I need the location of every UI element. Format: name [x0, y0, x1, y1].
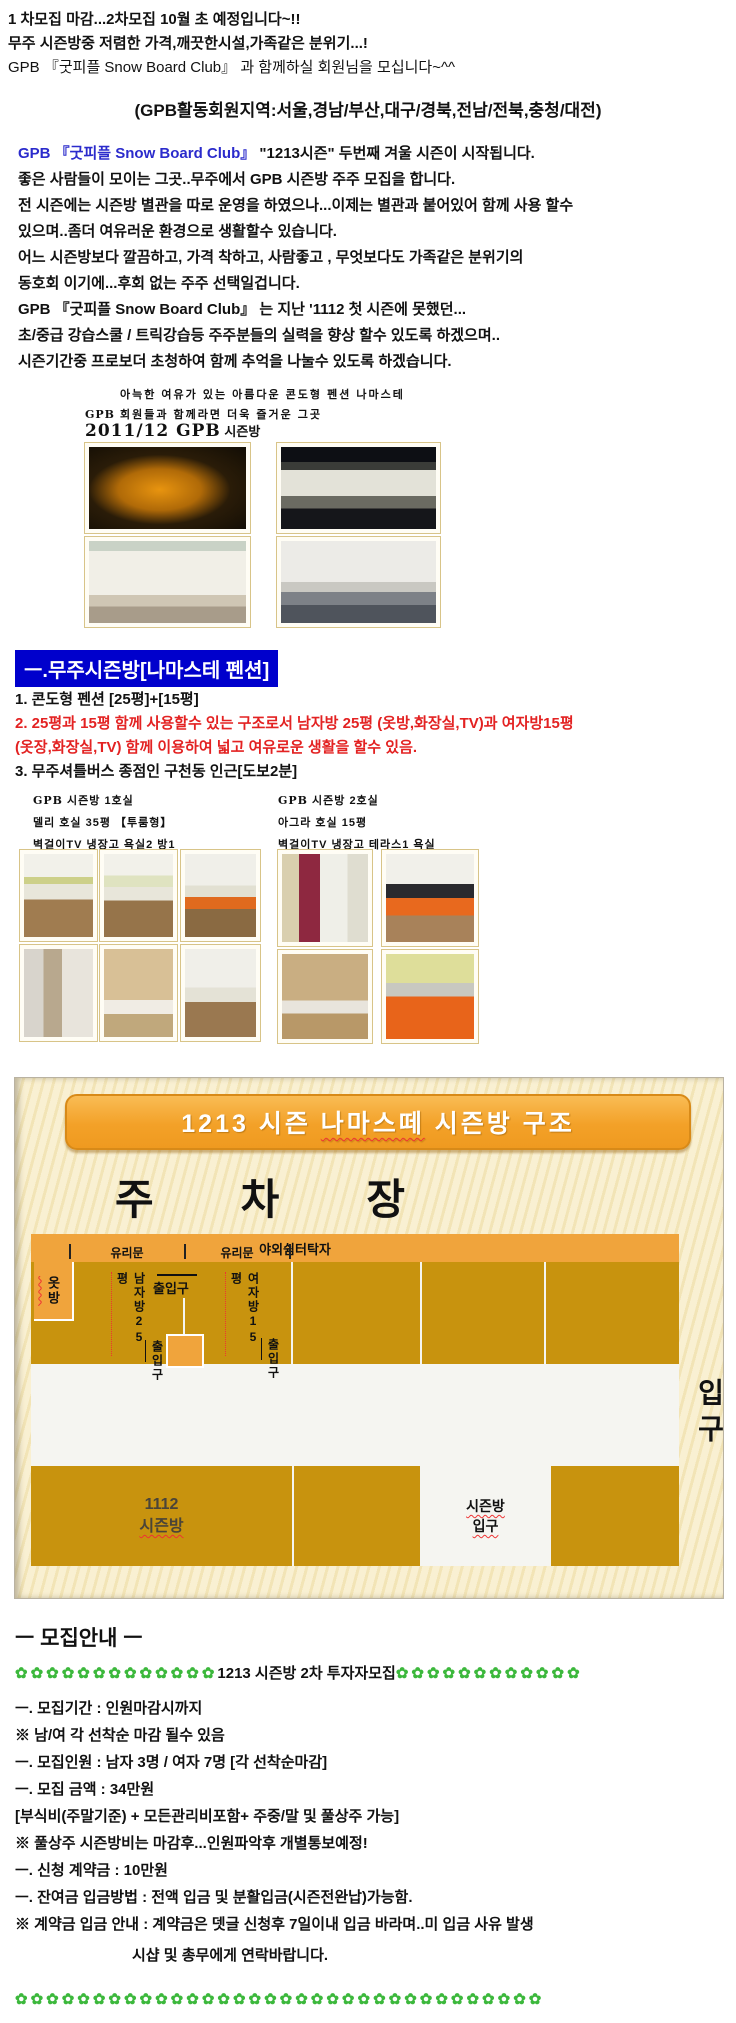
photo-room1-table [181, 945, 260, 1041]
gpb-logo-text: GPB [33, 794, 63, 807]
room-1112-number: 1112 [145, 1494, 179, 1516]
glass-door-label-1: 유리문 [103, 1244, 151, 1261]
entrance-mark-line [145, 1340, 146, 1362]
photo-room2-bathroom [278, 950, 372, 1043]
room-block-2 [294, 1466, 420, 1566]
intro-line-1: 1 차모집 마감...2차모집 10월 초 예정입니다~!! [8, 8, 300, 29]
desc-line-2: 좋은 사람들이 모이는 그곳..무주에서 GPB 시즌방 주주 모집을 합니다. [18, 168, 455, 189]
recruit-line: ㅡ. 모집인원 : 남자 3명 / 여자 7명 [각 선착순마감] [15, 1749, 534, 1776]
season-heading-bold: 2011/12 GPB [85, 421, 221, 441]
flower-icon: ✿✿✿✿✿✿✿✿✿✿✿✿ [396, 1665, 583, 1682]
section-item-1: 1. 콘도형 펜션 [25평]+[15평] [15, 688, 199, 709]
closet-box: 옷방 [34, 1262, 74, 1321]
photo-room1-kitchenette [181, 850, 260, 941]
diagram-title-seg1: 1213 시즌 [181, 1110, 321, 1138]
main-entrance-label: 입구 [689, 1378, 729, 1450]
entrance-mark-line [261, 1338, 262, 1360]
recruit-line: ※ 남/여 각 선착순 마감 될수 있음 [15, 1722, 534, 1749]
desc-line-5: 어느 시즌방보다 깔끔하고, 가격 착하고, 사람좋고 , 무엇보다도 가족같은… [18, 246, 523, 267]
parking-char: 장 [366, 1166, 405, 1227]
section-item-2a: 2. 25평과 15평 함께 사용할수 있는 구조로서 남자방 25평 (옷방,… [15, 712, 574, 733]
glass-door-label-2: 유리문 [213, 1244, 261, 1261]
photo-room1-living-1 [20, 850, 97, 941]
desc-line-6: 동호회 이기에...후회 없는 주주 선택일겁니다. [18, 272, 300, 293]
photo-building-day [85, 537, 250, 627]
room1-caption-1: GPB 시즌방 1호실 [33, 792, 134, 808]
club-name-link[interactable]: GPB 『굿피플 Snow Board Club』 [18, 145, 255, 162]
gpb-logo-text: GPB [278, 794, 308, 807]
closet-label: 옷방 [44, 1276, 63, 1306]
recruit-line: ㅡ. 모집기간 : 인원마감시까지 [15, 1695, 534, 1722]
section-item-3: 3. 무주셔틀버스 종점인 구천동 인근[도보2분] [15, 760, 297, 781]
entrance-bottom-left-label: 출입구 [149, 1340, 166, 1382]
photo-room2-redwall [278, 850, 372, 946]
diagram-title-seg2: 나마스떼 [321, 1110, 425, 1138]
diagram-title-seg4: 구조 [523, 1110, 575, 1138]
photo-room1-living-2 [100, 850, 177, 941]
recruit-line: ※ 계약금 입금 안내 : 계약금은 뎃글 신청후 7일이내 입금 바라며..미… [15, 1911, 534, 1938]
corridor [31, 1364, 679, 1466]
recruit-lines: ㅡ. 모집기간 : 인원마감시까지 ※ 남/여 각 선착순 마감 될수 있음 ㅡ… [15, 1695, 534, 1938]
desc-line-9: 시즌기간중 프로보더 초청하여 함께 추억을 나눌수 있도록 하겠습니다. [18, 350, 452, 371]
desc-line-1: GPB 『굿피플 Snow Board Club』 "1213시즌" 두번째 겨… [18, 142, 535, 163]
room2-caption-1-rest: 시즌방 2호실 [308, 795, 379, 807]
recruit-line: [부식비(주말기준) + 모든관리비포함+ 주중/말 및 풀상주 가능] [15, 1803, 534, 1830]
intro-line-2: 무주 시즌방중 저렴한 가격,깨끗한시설,가족같은 분위기...! [8, 32, 368, 53]
parking-char: 주 [115, 1166, 154, 1227]
post-page: 1 차모집 마감...2차모집 10월 초 예정입니다~!! 무주 시즌방중 저… [0, 0, 736, 2023]
flower-icon-row: ✿✿✿✿✿✿✿✿✿✿✿✿✿✿✿✿✿✿✿✿✿✿✿✿✿✿✿✿✿✿✿✿✿✿ [15, 1990, 544, 2008]
intro-line-3: GPB 『굿피플 Snow Board Club』 과 함께하실 회원님을 모십… [8, 56, 455, 77]
desc-line-8: 초/중급 강습스쿨 / 트릭강습등 주주분들의 실력을 향상 할수 있도록 하겠… [18, 324, 500, 345]
men-room-label: 남자방25평 [111, 1272, 148, 1356]
section-item-2b: (옷장,화장실,TV) 함께 이용하여 넓고 여유로운 생활을 할수 있음. [15, 736, 417, 757]
recruit-line: ㅡ. 모집 금액 : 34만원 [15, 1776, 534, 1803]
room-1112-word: 시즌방 [139, 1516, 183, 1538]
photo-room2-tv-kitchen [382, 850, 478, 946]
room-divider [420, 1262, 422, 1364]
region-line: (GPB활동회원지역:서울,경남/부산,대구/경북,전남/전북,충청/대전) [0, 96, 736, 121]
desc-line-7: GPB 『굿피플 Snow Board Club』 는 지난 '1112 첫 시… [18, 298, 466, 319]
photo-room1-doors [20, 945, 97, 1041]
vestibule-box [166, 1334, 204, 1368]
room-divider [291, 1262, 293, 1364]
women-room-label: 여자방15평 [225, 1272, 262, 1356]
room-1112-block: 1112 시즌방 [31, 1466, 292, 1566]
season-entrance-line2: 입구 [473, 1516, 499, 1536]
room1-caption-2: 델리 호실 35평 【투룸형】 [33, 814, 172, 830]
recruit-heading: ㅡ 모집안내 ㅡ [15, 1622, 143, 1652]
recruit-line: ㅡ. 잔여금 입금방법 : 전액 입금 및 분활입금(시즌전완납)가능함. [15, 1884, 534, 1911]
recruit-banner-text: 1213 시즌방 2차 투자자모집 [217, 1665, 395, 1682]
mid-entrance-label: 출입구 [153, 1278, 189, 1297]
diagram-title-bar: 1213 시즌 나마스떼 시즌방 시즌방 구조 [65, 1094, 691, 1150]
season-heading-rest: 시즌방 [221, 424, 261, 439]
mid-entrance-divider [183, 1298, 185, 1336]
gpb-logo-text: GPB [85, 408, 115, 421]
parking-label: 주 차 장 [115, 1166, 405, 1227]
season-heading: 2011/12 GPB 시즌방 [85, 421, 260, 441]
wall-tick [69, 1244, 71, 1259]
season-entrance-gap: 시즌방 입구 [420, 1466, 551, 1566]
desc-line-3: 전 시즌에는 시즌방 별관을 따로 운영을 하였으나...이제는 별관과 붙어있… [18, 194, 573, 215]
desc-line-1-rest: "1213시즌" 두번째 겨울 시즌이 시작됩니다. [255, 145, 535, 162]
entrance-bottom-right-label: 출입구 [265, 1338, 282, 1380]
photo-building-night [277, 443, 440, 533]
room2-caption-1: GPB 시즌방 2호실 [278, 792, 379, 808]
desc-line-4: 있으며..좀더 여유러운 환경으로 생활할수 있습니다. [18, 220, 337, 241]
season-entrance-line1: 시즌방 [466, 1496, 505, 1516]
room2-caption-2: 아그라 호실 15평 [278, 814, 367, 830]
photo-namaste-sign [85, 443, 250, 533]
recruit-banner: ✿✿✿✿✿✿✿✿✿✿✿✿✿1213 시즌방 2차 투자자모집✿✿✿✿✿✿✿✿✿✿… [15, 1662, 583, 1683]
wall-tick [184, 1244, 186, 1259]
flower-icon: ✿✿✿✿✿✿✿✿✿✿✿✿✿ [15, 1665, 217, 1682]
photo-room1-bathroom [100, 945, 177, 1041]
recruit-line: ※ 풀상주 시즌방비는 마감후...인원파악후 개별통보예정! [15, 1830, 534, 1857]
parking-char: 차 [241, 1166, 280, 1227]
room-block-3 [551, 1466, 679, 1566]
room-1112-label: 1112 시즌방 [31, 1466, 292, 1566]
room1-caption-1-rest: 시즌방 1호실 [63, 795, 134, 807]
pension-caption-1: 아늑한 여유가 있는 아름다운 콘도형 펜션 나마스테 [120, 386, 405, 402]
recruit-footer: 시샵 및 총무에게 연락바랍니다. [132, 1944, 328, 1965]
mid-entrance-line [157, 1274, 197, 1276]
diagram-title: 1213 시즌 나마스떼 시즌방 시즌방 구조 [181, 1104, 574, 1140]
pension-caption-2: GPB 회원들과 함께라면 더욱 즐거운 그곳 [85, 406, 322, 422]
diagram-title-seg3: 시즌방 [425, 1110, 523, 1138]
recruit-line: ㅡ. 신청 계약금 : 10만원 [15, 1857, 534, 1884]
photo-room2-sink [382, 950, 478, 1043]
floorplan-diagram: 1213 시즌 나마스떼 시즌방 시즌방 구조 주 차 장 야외쉼터탁자 유리문… [14, 1077, 724, 1599]
photo-hallway [277, 537, 440, 627]
section-title-muju: ㅡ.무주시즌방[나마스테 펜션] [15, 650, 278, 687]
pension-caption-2-rest: 회원들과 함께라면 더욱 즐거운 그곳 [115, 409, 322, 421]
wall-tick [289, 1244, 291, 1259]
room-divider [544, 1262, 546, 1364]
